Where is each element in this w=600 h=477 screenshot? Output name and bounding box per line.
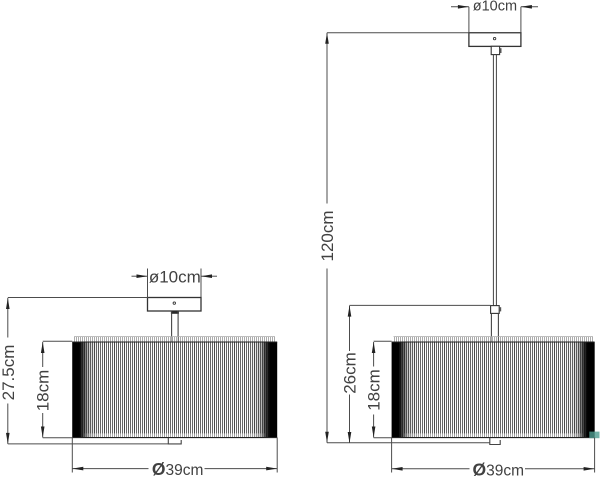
svg-text:18cm: 18cm — [365, 369, 384, 411]
svg-text:27.5cm: 27.5cm — [0, 345, 18, 401]
svg-text:Ø39cm: Ø39cm — [152, 459, 204, 477]
svg-text:ø10cm: ø10cm — [473, 0, 517, 15]
svg-text:ø10cm: ø10cm — [149, 267, 201, 286]
svg-text:18cm: 18cm — [34, 370, 53, 412]
svg-text:120cm: 120cm — [318, 210, 337, 261]
svg-text:Ø39cm: Ø39cm — [473, 460, 525, 477]
svg-text:26cm: 26cm — [341, 352, 360, 394]
